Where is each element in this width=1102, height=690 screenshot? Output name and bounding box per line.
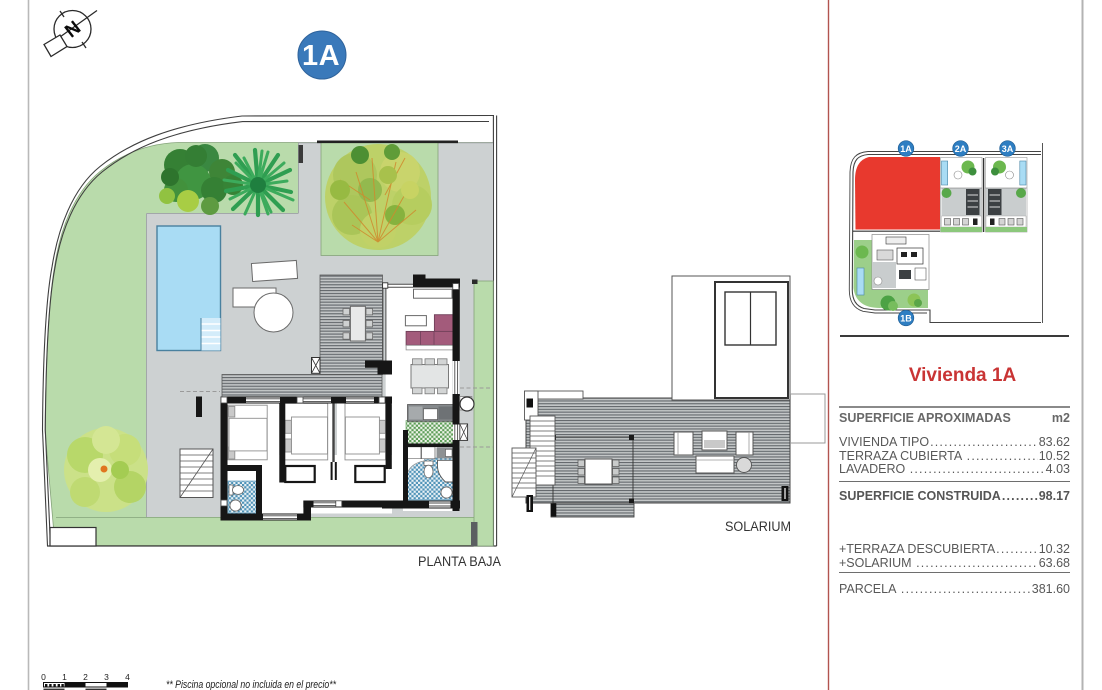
svg-text:1: 1 [62, 672, 67, 682]
svg-text:1B: 1B [900, 314, 912, 324]
svg-text:1A: 1A [302, 40, 340, 72]
svg-text:3: 3 [104, 672, 109, 682]
svg-text:2A: 2A [955, 144, 967, 154]
svg-text:4: 4 [125, 672, 130, 682]
svg-text:** Piscina opcional no incluid: ** Piscina opcional no incluida en el pr… [166, 679, 337, 690]
svg-text:3A: 3A [1002, 144, 1014, 154]
svg-text:SOLARIUM: SOLARIUM [725, 519, 791, 534]
svg-text:1A: 1A [900, 144, 912, 154]
svg-text:0: 0 [41, 672, 46, 682]
svg-text:PLANTA BAJA: PLANTA BAJA [418, 554, 501, 569]
svg-text:2: 2 [83, 672, 88, 682]
